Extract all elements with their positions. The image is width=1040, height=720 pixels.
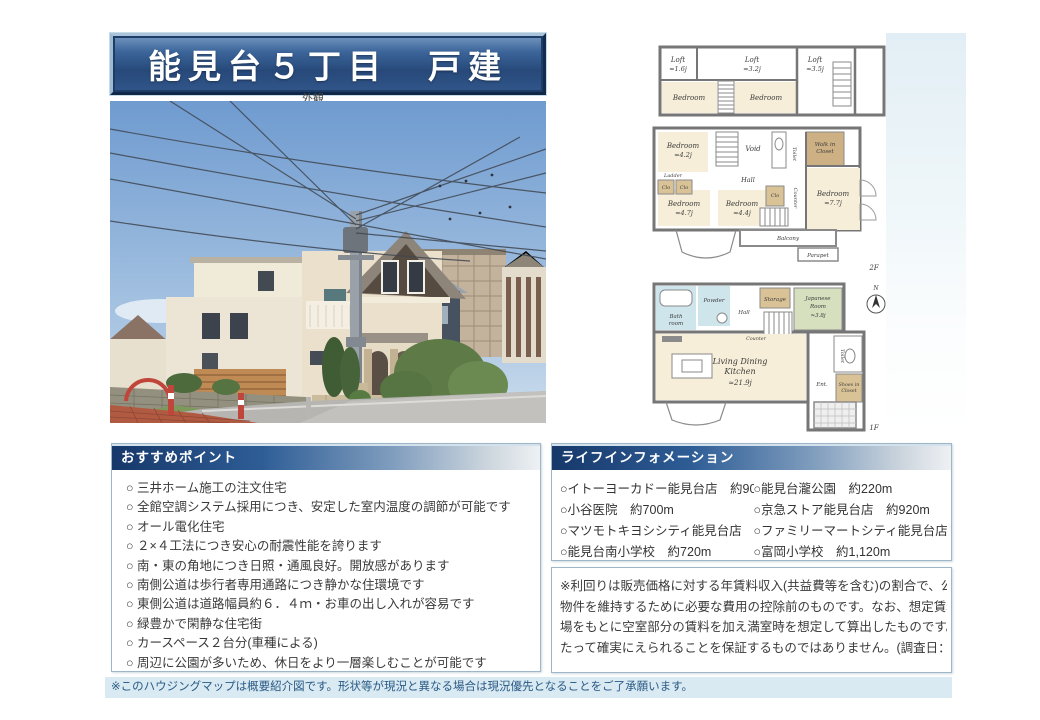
disclaimer-text: ※利回りは販売価格に対する年賃料収入(共益費等を含む)の割合で、公租公課その他当… <box>552 568 951 658</box>
north-label: N <box>872 285 879 292</box>
recommend-box: おすすめポイント ○ 三井ホーム施工の注文住宅 ○ 全館空調システム採用につき、… <box>111 443 541 672</box>
list-item: ○能見台南小学校 約720m <box>560 542 754 563</box>
room-size: ≈1.6j <box>669 65 687 73</box>
list-item: ○京急ストア能見台店 約920m <box>754 500 948 521</box>
life-info-left-column: ○イトーヨーカドー能見台店 約900m ○小谷医院 約700m ○マツモトキヨシ… <box>560 479 754 563</box>
room-size: ≈3.8j <box>810 313 825 319</box>
list-item: ○ 緑豊かで閑静な住宅街 <box>126 615 534 634</box>
room-label: Loft <box>744 56 759 64</box>
life-info-list: ○イトーヨーカドー能見台店 約900m ○小谷医院 約700m ○マツモトキヨシ… <box>552 470 951 563</box>
compass: N <box>867 285 885 313</box>
page-title: 能見台５丁目 戸建 <box>148 40 508 88</box>
list-item: ○ 南・東の角地につき日照・通風良好。開放感があります <box>126 557 534 576</box>
room-label: Ladder <box>663 173 683 179</box>
room-size: ≈21.9j <box>728 379 752 387</box>
disclaimer-line: たって確実にえられることを保証するものではありません。(調査日：令和元年11月3… <box>560 638 947 659</box>
exterior-photo <box>110 101 546 423</box>
footer-note: ※このハウジングマップは概要紹介図です。形状等が現況と異なる場合は現況優先となる… <box>105 677 952 698</box>
room-label: Room <box>809 304 826 310</box>
room-label: Bedroom <box>725 200 759 208</box>
room-label: Living Dining <box>712 357 768 366</box>
room-label: Powder <box>703 298 725 304</box>
list-item: ○ 周辺に公園が多いため、休日をより一層楽しむことが可能です <box>126 654 534 673</box>
room-label: Toilet <box>791 147 797 162</box>
disclaimer-line: 物件を維持するために必要な費用の控除前のものです。なお、想定賃料想定利回りは賃料… <box>560 597 947 618</box>
room-label: Balcony <box>776 236 800 242</box>
room-label: Clo <box>771 193 779 199</box>
list-item: ○イトーヨーカドー能見台店 約900m <box>560 479 754 500</box>
recommend-list: ○ 三井ホーム施工の注文住宅 ○ 全館空調システム採用につき、安定した室内温度の… <box>112 470 540 673</box>
room-label: Clo <box>680 185 688 191</box>
recommend-header: おすすめポイント <box>112 444 540 470</box>
floor-label: 1F <box>869 424 879 432</box>
room-label: Parapet <box>806 253 829 259</box>
floor-label: 2F <box>868 264 879 272</box>
room-label: Closet <box>816 149 834 155</box>
room-label: Hall <box>737 310 750 316</box>
room-label: Counter <box>746 336 767 342</box>
list-item: ○ カースペース２台分(車種による) <box>126 634 534 653</box>
floorplan-1f: N Bath room Powder Hall Storage Japanese… <box>648 280 892 434</box>
floorplan-loft: Loft ≈1.6j Loft ≈3.2j Loft ≈3.5j Bedroom… <box>657 44 887 118</box>
room-label: Bedroom <box>749 94 783 102</box>
life-info-right-column: ○能見台瀧公園 約220m ○京急ストア能見台店 約920m ○ファミリーマート… <box>754 479 948 563</box>
life-info-header: ライフインフォメーション <box>552 444 951 470</box>
room-label: Toilet <box>839 349 845 364</box>
exterior-photo-art <box>110 101 546 423</box>
flyer-page: 能見台５丁目 戸建 外観 <box>0 0 1040 720</box>
room-label: Closet <box>841 388 856 394</box>
disclaimer-box: ※利回りは販売価格に対する年賃料収入(共益費等を含む)の割合で、公租公課その他当… <box>551 567 952 673</box>
room-label: Japanese <box>804 296 831 302</box>
room-label: Walk in <box>815 142 836 148</box>
room-size: ≈7.7j <box>824 199 842 207</box>
room-label: Counter <box>792 188 798 209</box>
list-item: ○ 東側公道は道路幅員約６．４ｍ・お車の出し入れが容易です <box>126 595 534 614</box>
list-item: ○能見台瀧公園 約220m <box>754 479 948 500</box>
room-label: Bedroom <box>816 190 850 198</box>
disclaimer-line: ※利回りは販売価格に対する年賃料収入(共益費等を含む)の割合で、公租公課その他当… <box>560 576 947 597</box>
list-item: ○富岡小学校 約1,120m <box>754 542 948 563</box>
list-item: ○マツモトキヨシシティ能見台店 約500m <box>560 521 754 542</box>
floorplan-2f: Bedroom ≈4.2j Ladder Clo Clo Void Hall T… <box>648 124 892 280</box>
room-size: ≈3.5j <box>806 65 824 73</box>
room-label: Bath <box>668 314 683 320</box>
list-item: ○ 全館空調システム採用につき、安定した室内温度の調節が可能です <box>126 498 534 517</box>
room-label: Loft <box>807 56 822 64</box>
room-label: Void <box>745 145 761 153</box>
list-item: ○ オール電化住宅 <box>126 518 534 537</box>
room-label: Storage <box>764 297 787 303</box>
room-size: ≈4.4j <box>733 209 751 217</box>
room-label: Shoes in <box>839 382 860 388</box>
room-label: Hall <box>740 176 755 184</box>
right-striped-house <box>502 251 546 363</box>
porch-tiles <box>814 402 856 428</box>
room-size: ≈4.2j <box>674 151 692 159</box>
life-info-box: ライフインフォメーション ○イトーヨーカドー能見台店 約900m ○小谷医院 約… <box>551 443 952 561</box>
room-label: Ent. <box>815 382 828 388</box>
list-item: ○ ２×４工法につき安心の耐震性能を誇ります <box>126 537 534 556</box>
room-label: Clo <box>662 185 670 191</box>
room-label: Bedroom <box>672 94 706 102</box>
background-fade-strip <box>886 33 966 433</box>
list-item: ○ 三井ホーム施工の注文住宅 <box>126 479 534 498</box>
room-label: Bedroom <box>666 142 700 150</box>
room-label: Kitchen <box>723 367 755 376</box>
title-banner: 能見台５丁目 戸建 <box>110 33 546 95</box>
room-label: Loft <box>670 56 685 64</box>
list-item: ○ 南側公道は歩行者専用通路につき静かな住環境です <box>126 576 534 595</box>
room-label: Bedroom <box>667 200 701 208</box>
room-label: room <box>669 321 683 327</box>
list-item: ○小谷医院 約700m <box>560 500 754 521</box>
disclaimer-line: 場をもとに空室部分の賃料を加え満室時を想定して算出したものです。※賃料収入は将来… <box>560 617 947 638</box>
list-item: ○ファミリーマートシティ能見台店 約400m <box>754 521 948 542</box>
room-size: ≈3.2j <box>743 65 761 73</box>
room-size: ≈4.7j <box>675 209 693 217</box>
